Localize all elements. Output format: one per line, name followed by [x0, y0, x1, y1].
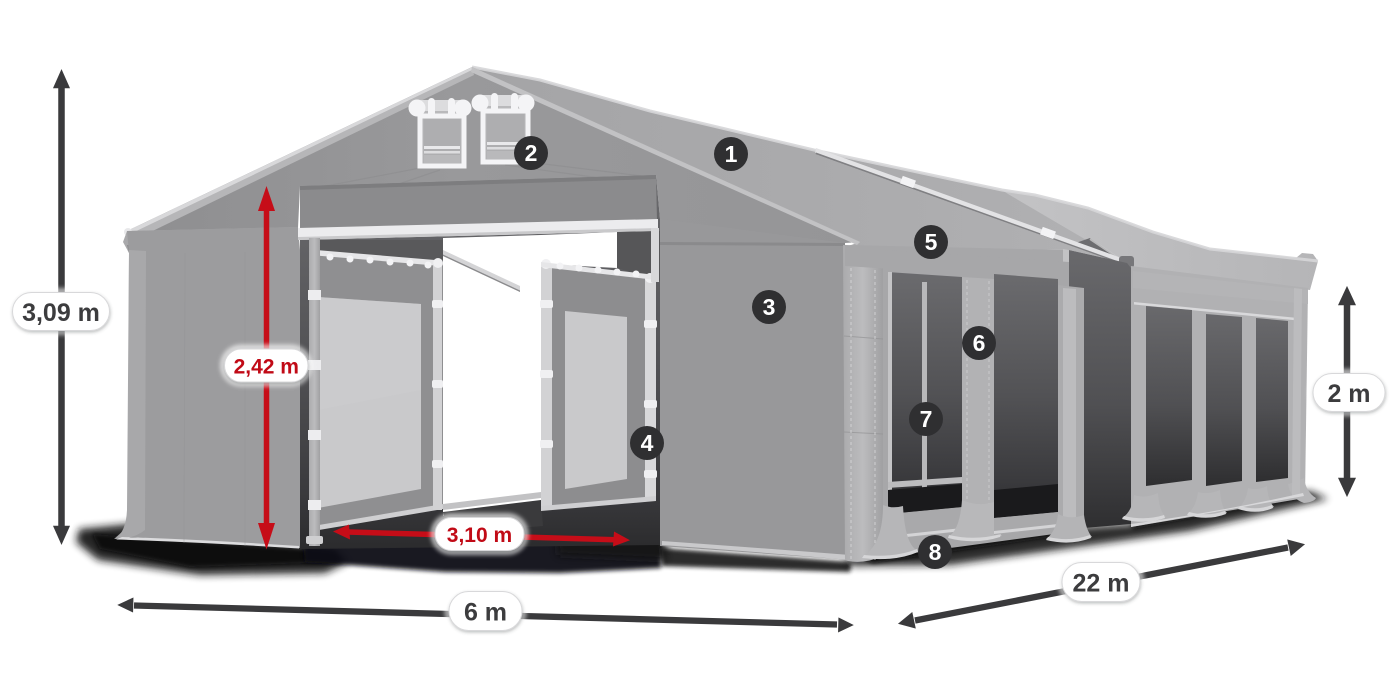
svg-text:3: 3 [763, 294, 776, 320]
svg-text:5: 5 [925, 229, 938, 255]
svg-text:22 m: 22 m [1073, 570, 1130, 598]
svg-text:2: 2 [525, 140, 538, 166]
svg-text:3,09 m: 3,09 m [22, 299, 100, 327]
svg-text:3,10 m: 3,10 m [447, 524, 512, 547]
svg-text:2,42 m: 2,42 m [234, 356, 299, 379]
svg-text:8: 8 [929, 539, 942, 565]
svg-text:6: 6 [973, 330, 986, 356]
svg-text:6 m: 6 m [464, 599, 507, 627]
svg-text:7: 7 [920, 406, 933, 432]
svg-text:2 m: 2 m [1327, 380, 1370, 408]
svg-text:1: 1 [725, 141, 738, 167]
svg-text:4: 4 [641, 430, 654, 456]
